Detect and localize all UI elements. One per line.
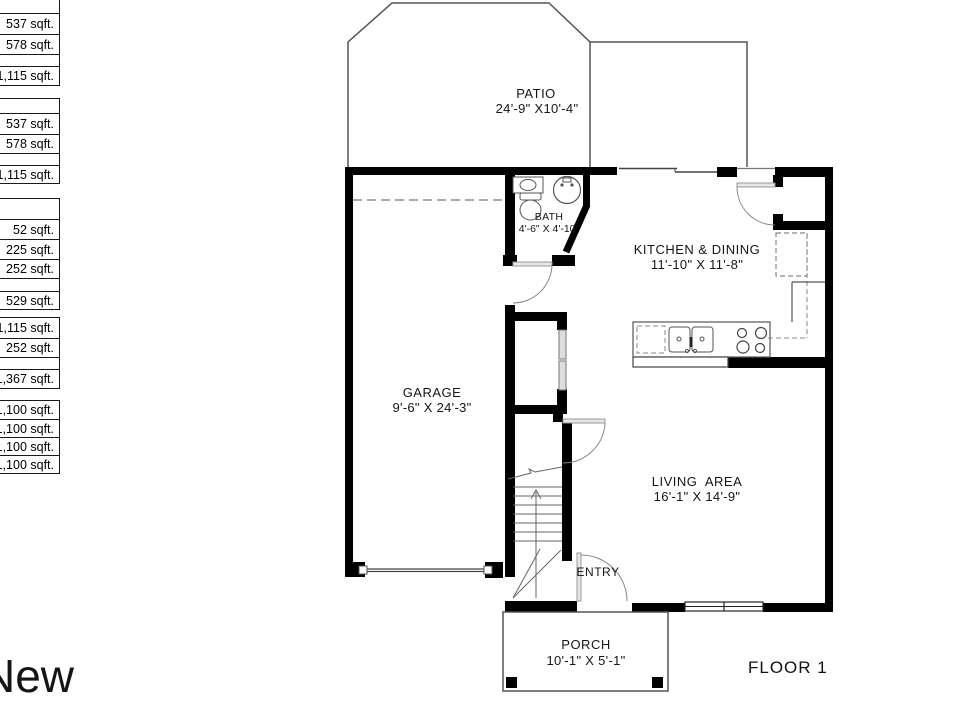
hall-door xyxy=(513,262,552,303)
sliding-door xyxy=(619,169,717,173)
table-row: 537 sqft. xyxy=(0,13,59,34)
upper-cabinets-dashed xyxy=(768,233,807,338)
bath-sink xyxy=(554,177,581,204)
area-table-4: 1,115 sqft. 252 sqft. 1,367 sqft. xyxy=(0,317,60,389)
closet-doors xyxy=(559,330,566,390)
table-row: 1,367 sqft. xyxy=(0,369,59,388)
garage-dims: 9'-6" X 24'-3" xyxy=(392,400,471,416)
floor-number-label: FLOOR 1 xyxy=(748,658,828,678)
area-table-3: 52 sqft. 225 sqft. 252 sqft. 529 sqft. xyxy=(0,198,60,310)
kitchen-half-wall xyxy=(633,357,728,367)
table-row xyxy=(0,0,59,13)
porch-label: PORCH xyxy=(561,637,610,653)
table-row xyxy=(0,357,59,369)
table-row: 537 sqft. xyxy=(0,113,59,134)
living-area-label: LIVING AREA xyxy=(652,474,743,490)
table-row xyxy=(0,54,59,66)
bath-vanity xyxy=(513,177,543,193)
table-row: 1,100 sqft. xyxy=(0,455,59,473)
patio-label: PATIO xyxy=(516,86,556,102)
table-row: 578 sqft. xyxy=(0,34,59,54)
table-row xyxy=(0,99,59,113)
garage-door xyxy=(359,566,492,574)
table-row: 1,100 sqft. xyxy=(0,401,59,419)
table-row: 1,115 sqft. xyxy=(0,165,59,183)
kitchen-dining-dims: 11'-10" X 11'-8" xyxy=(651,257,743,273)
table-row: 1,100 sqft. xyxy=(0,419,59,437)
table-row: 1,115 sqft. xyxy=(0,66,59,85)
living-window xyxy=(685,602,763,611)
garage-label: GARAGE xyxy=(403,385,462,401)
bath-dims: 4'-6" X 4'-10" xyxy=(519,223,580,236)
porch-dims: 10'-1" X 5'-1" xyxy=(546,653,625,669)
table-row: 1,115 sqft. xyxy=(0,318,59,338)
stair-break-line xyxy=(508,467,562,479)
entry-label: ENTRY xyxy=(577,565,620,579)
kitchen-rear-door xyxy=(737,183,775,225)
area-table-5: 1,100 sqft. 1,100 sqft. 1,100 sqft. 1,10… xyxy=(0,400,60,474)
area-table-1: 537 sqft. 578 sqft. 1,115 sqft. xyxy=(0,0,60,86)
table-row xyxy=(0,278,59,291)
deck-outline xyxy=(590,42,747,167)
kitchen-counter xyxy=(633,322,770,357)
living-area-dims: 16'-1" X 14'-9" xyxy=(654,489,741,505)
bath-label: BATH xyxy=(535,211,563,224)
table-row: 252 sqft. xyxy=(0,338,59,357)
table-row: 578 sqft. xyxy=(0,134,59,153)
table-row: 52 sqft. xyxy=(0,219,59,239)
refrigerator xyxy=(776,233,807,276)
floor-plan-drawing xyxy=(0,0,960,720)
area-table-2: 537 sqft. 578 sqft. 1,115 sqft. xyxy=(0,98,60,184)
porch-post-left xyxy=(506,677,517,688)
table-row: 225 sqft. xyxy=(0,239,59,259)
patio-dims: 24'-9" X10'-4" xyxy=(496,101,579,117)
porch-post-right xyxy=(652,677,663,688)
stair-winder-1 xyxy=(513,550,561,598)
table-row: 252 sqft. xyxy=(0,259,59,278)
floor-plan: PATIO 24'-9" X10'-4" BATH 4'-6" X 4'-10"… xyxy=(0,0,960,720)
table-row: 529 sqft. xyxy=(0,291,59,309)
table-row xyxy=(0,153,59,165)
kitchen-dining-label: KITCHEN & DINING xyxy=(634,242,760,258)
patio-outline xyxy=(348,3,590,167)
watermark-text: New xyxy=(0,649,74,703)
kitchen-side-counter xyxy=(792,282,825,322)
table-row: 1,100 sqft. xyxy=(0,437,59,455)
table-row xyxy=(0,199,59,219)
stairs xyxy=(508,467,562,598)
